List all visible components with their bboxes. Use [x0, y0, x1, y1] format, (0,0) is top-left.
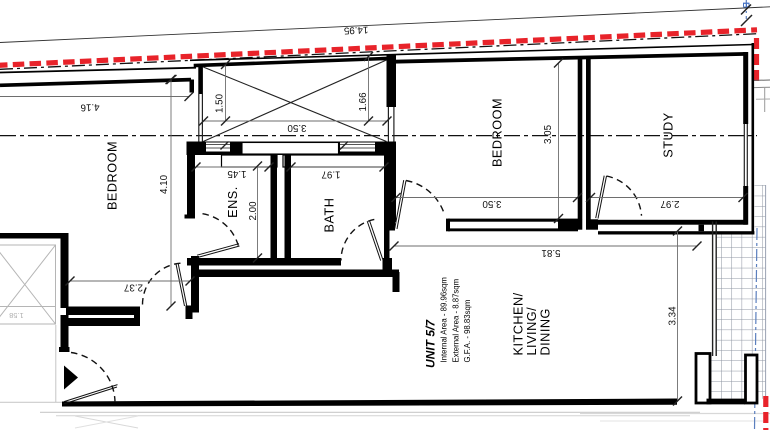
svg-text:STUDY: STUDY — [662, 112, 676, 158]
svg-text:1.97: 1.97 — [321, 169, 340, 180]
svg-text:DINING: DINING — [539, 308, 553, 355]
svg-text:1.66: 1.66 — [358, 92, 369, 112]
svg-text:3.50: 3.50 — [482, 198, 502, 209]
svg-text:1.45: 1.45 — [227, 168, 247, 179]
svg-text:1.50: 1.50 — [215, 93, 226, 113]
svg-text:2.00: 2.00 — [248, 201, 259, 221]
svg-text:UNIT 5/7: UNIT 5/7 — [424, 319, 438, 368]
svg-text:Internal Area - 89.96sqm: Internal Area - 89.96sqm — [440, 277, 449, 362]
svg-text:14.95: 14.95 — [343, 24, 369, 36]
svg-text:1.58: 1.58 — [9, 311, 24, 320]
svg-text:KITCHEN/: KITCHEN/ — [512, 292, 526, 355]
svg-text:BEDROOM: BEDROOM — [491, 98, 505, 167]
svg-text:3.05: 3.05 — [543, 124, 554, 144]
svg-text:External Area - 8.87sqm: External Area - 8.87sqm — [452, 279, 461, 363]
svg-text:2.97: 2.97 — [660, 198, 679, 209]
svg-text:BATH: BATH — [323, 198, 337, 233]
svg-text:3.34: 3.34 — [668, 306, 679, 326]
svg-text:3.50: 3.50 — [287, 122, 307, 133]
svg-text:BEDROOM: BEDROOM — [106, 141, 120, 210]
svg-text:ENS.: ENS. — [226, 186, 240, 218]
svg-text:4.16: 4.16 — [80, 101, 100, 113]
svg-text:5.81: 5.81 — [541, 247, 560, 258]
svg-text:2.37: 2.37 — [124, 281, 143, 292]
svg-text:LIVING/: LIVING/ — [525, 307, 539, 356]
svg-text:G.F.A. - 98.83sqm: G.F.A. - 98.83sqm — [463, 300, 472, 363]
svg-text:4.10: 4.10 — [159, 174, 170, 194]
